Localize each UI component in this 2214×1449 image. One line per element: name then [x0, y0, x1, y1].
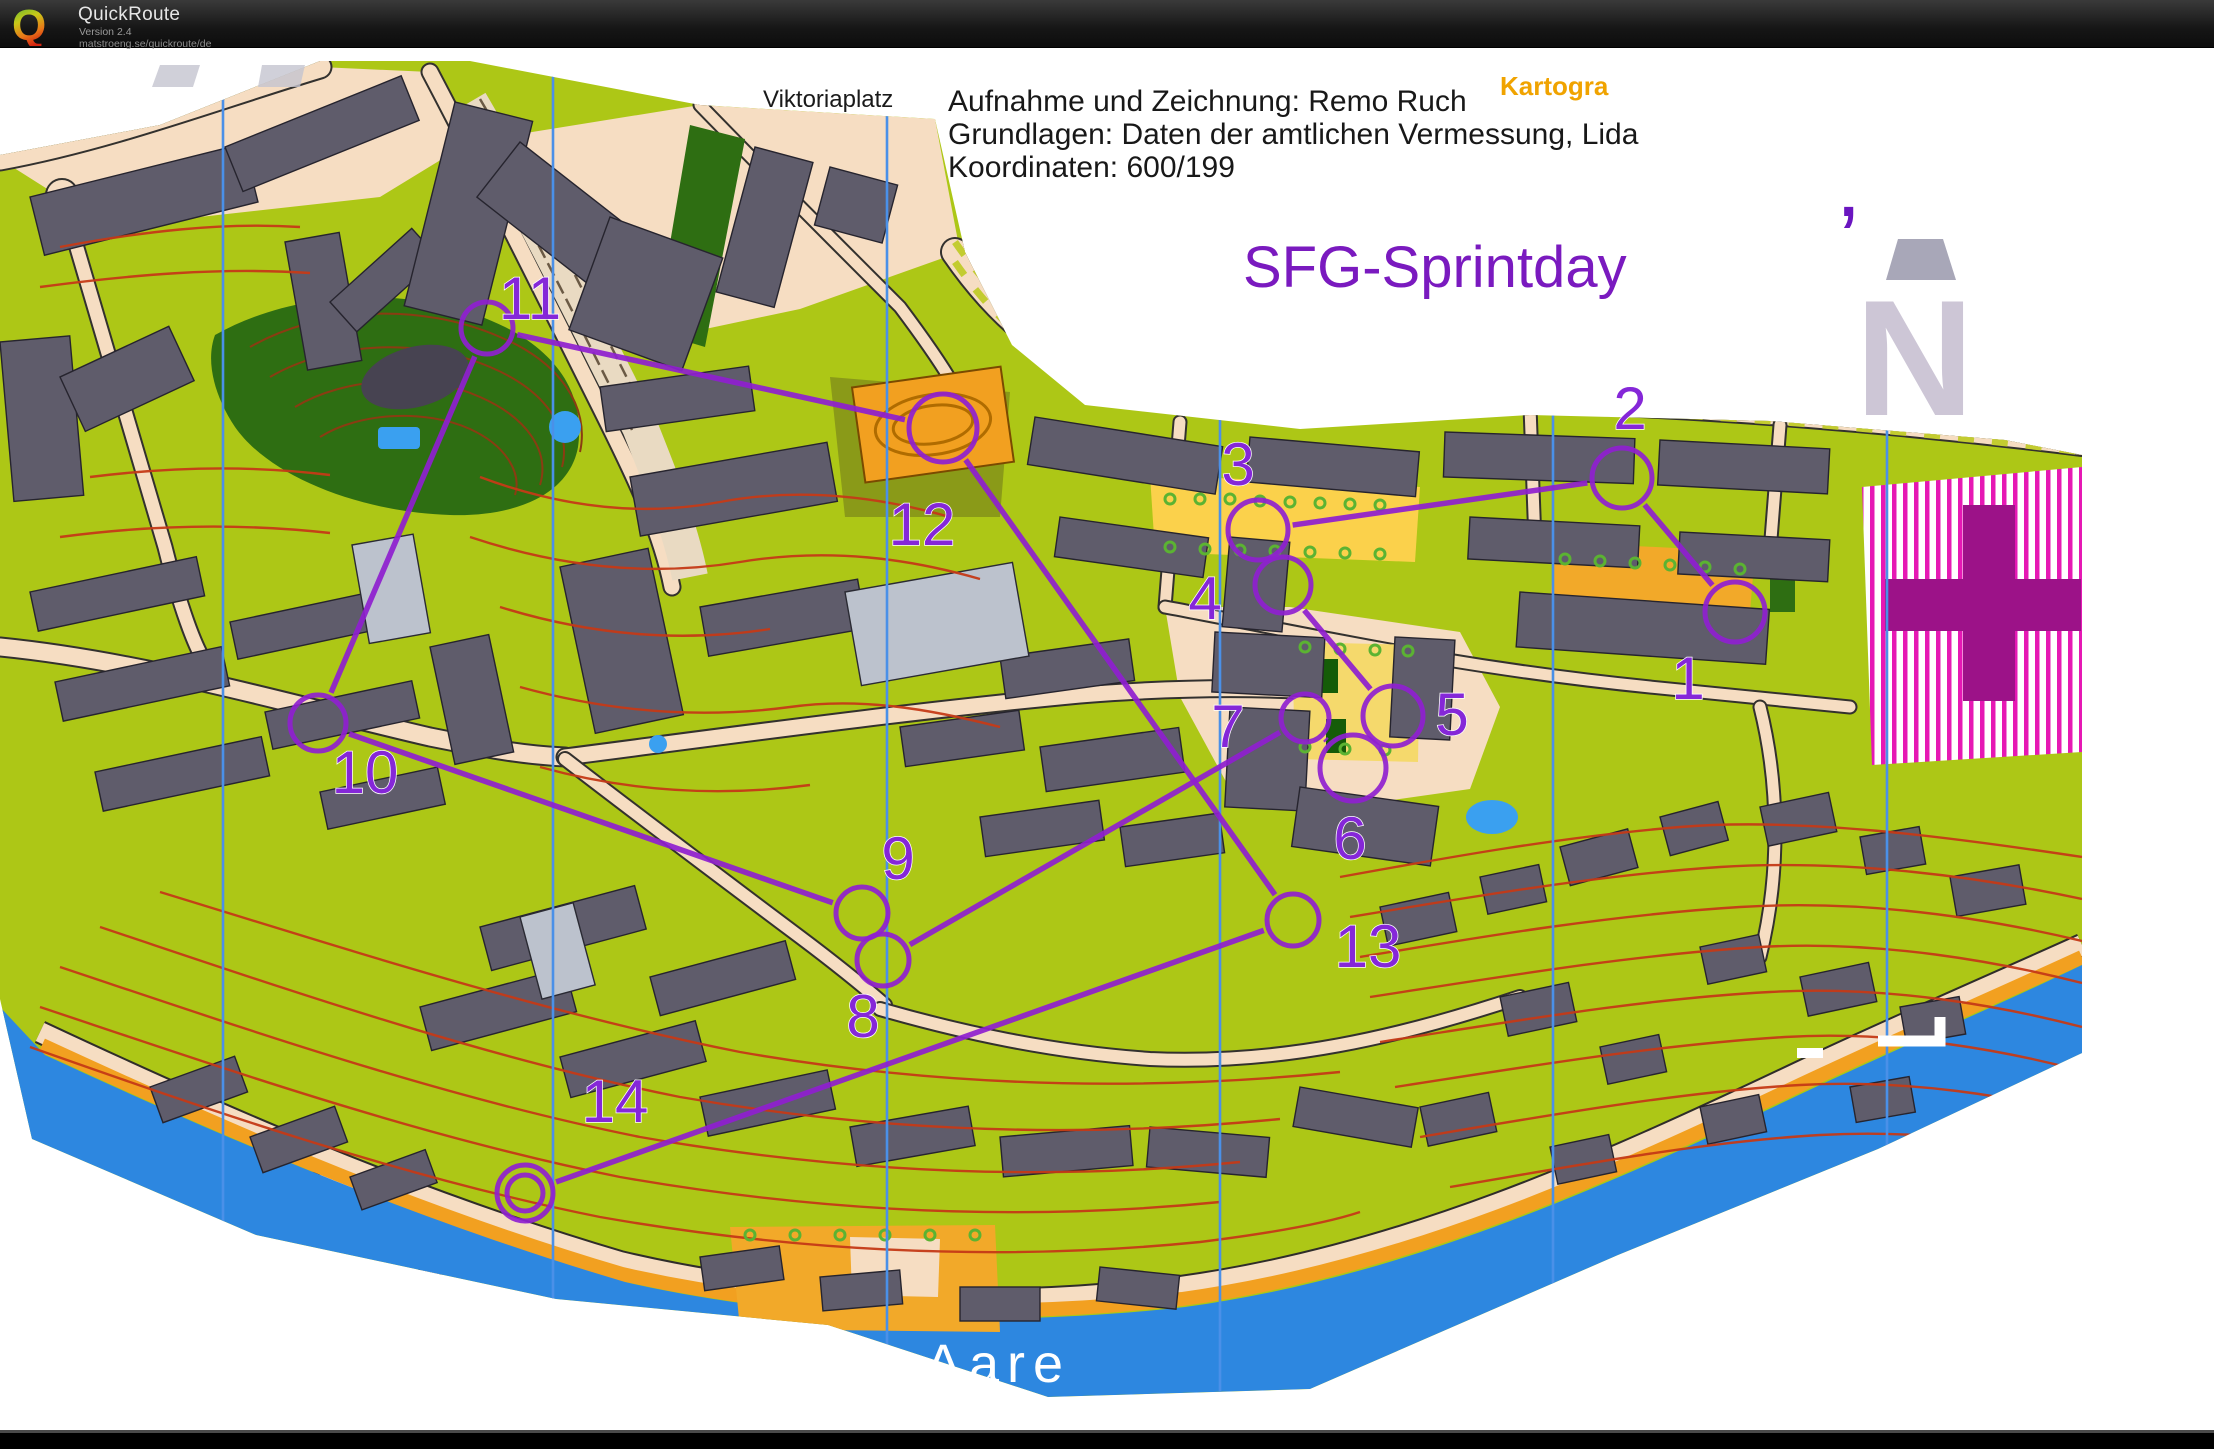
white-correction-mark [1797, 1048, 1823, 1058]
control-number: 11 [499, 265, 561, 332]
map-viewport[interactable]: Viktoriaplatz Aufnahme und Zeichnung: Re… [0, 47, 2214, 1444]
credit-line-1: Aufnahme und Zeichnung: Remo Ruch [948, 85, 1467, 118]
svg-text:Q: Q [12, 2, 46, 46]
control-number: 13 [1335, 913, 1402, 980]
quickroute-window: { "header": { "logo_letter": "Q", "app_n… [0, 0, 2214, 1444]
credit-line-3: Koordinaten: 600/199 [948, 151, 1235, 184]
control-number: 6 [1333, 805, 1366, 872]
control-number: 7 [1211, 693, 1244, 760]
quickroute-logo-icon: Q [10, 2, 54, 46]
app-title: QuickRoute [78, 4, 180, 26]
control-number: 4 [1188, 565, 1221, 632]
credit-line-2: Grundlagen: Daten der amtlichen Vermessu… [948, 118, 1639, 151]
control-number: 12 [889, 491, 956, 558]
app-version: Version 2.4 [79, 26, 132, 38]
control-number: 9 [881, 825, 914, 892]
place-label: Viktoriaplatz [763, 86, 893, 113]
control-number: 8 [846, 983, 879, 1050]
orienteering-map[interactable]: Viktoriaplatz Aufnahme und Zeichnung: Re… [0, 47, 2214, 1444]
course-leg [1325, 739, 1327, 741]
control-number: 2 [1613, 375, 1646, 442]
watermark-fragment [258, 65, 305, 87]
title-bar: Q QuickRoute Version 2.4 matstroeng.se/q… [0, 0, 2214, 48]
north-mark: N [1855, 266, 1974, 450]
watermark-fragment [152, 65, 200, 87]
app-url: matstroeng.se/quickroute/de [79, 38, 212, 50]
event-title: SFG-Sprintday [1243, 235, 1627, 300]
partial-logo-text: Kartogra [1500, 71, 1609, 101]
control-number: 1 [1671, 645, 1704, 712]
control-number: 14 [582, 1068, 649, 1135]
control-number: 3 [1221, 431, 1254, 498]
control-number: 5 [1435, 681, 1468, 748]
control-number: 10 [332, 739, 399, 806]
window-edge-line [0, 1430, 2214, 1433]
river-label: Aare [925, 1334, 1071, 1394]
